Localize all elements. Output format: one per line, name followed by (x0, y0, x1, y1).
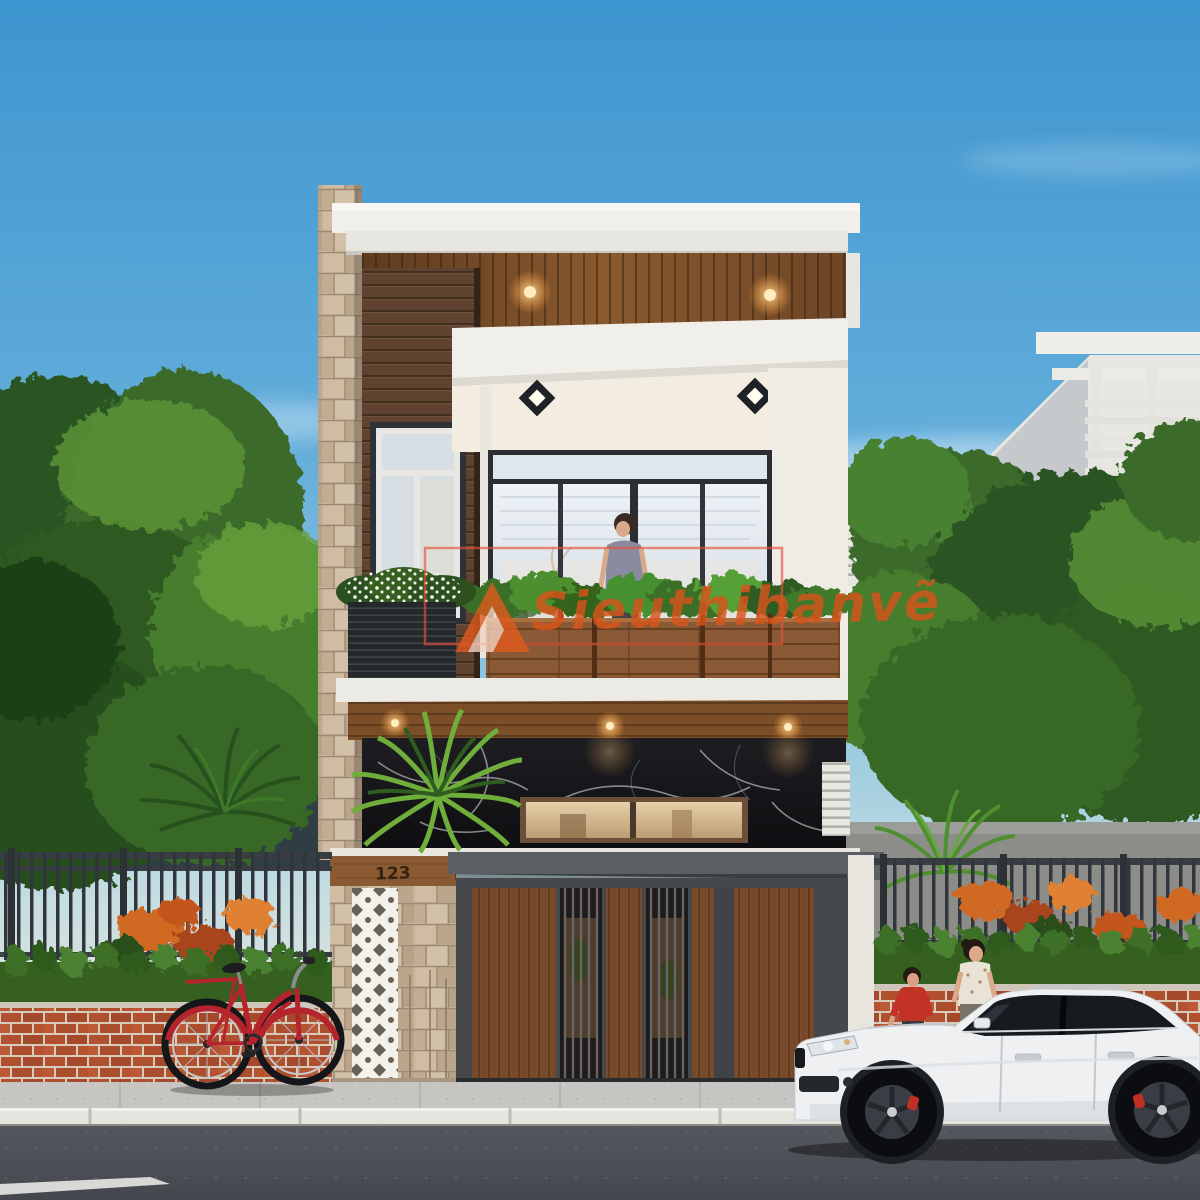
roof-slab (332, 203, 860, 255)
watermark-text: Sieuthibanvẽ (531, 572, 942, 643)
architectural-render: 123 (0, 0, 1200, 1200)
road (0, 1126, 1200, 1200)
marble-transom-window (520, 797, 748, 843)
front-wheel (847, 1067, 937, 1157)
grille (795, 1048, 805, 1068)
hedge-right (874, 925, 1200, 988)
gate-slot (646, 888, 688, 1078)
wooden-gate (456, 878, 848, 1088)
house-number: 123 (375, 863, 411, 884)
balcony-slab (336, 678, 848, 742)
side-mirror (974, 1018, 990, 1028)
breeze-block-column (352, 888, 398, 1086)
gate-pier: 123 (326, 856, 460, 1090)
gate-slot (560, 888, 602, 1078)
scene-canvas: 123 (0, 0, 1200, 1200)
side-louver (822, 762, 850, 836)
stone-pillar (318, 185, 362, 860)
